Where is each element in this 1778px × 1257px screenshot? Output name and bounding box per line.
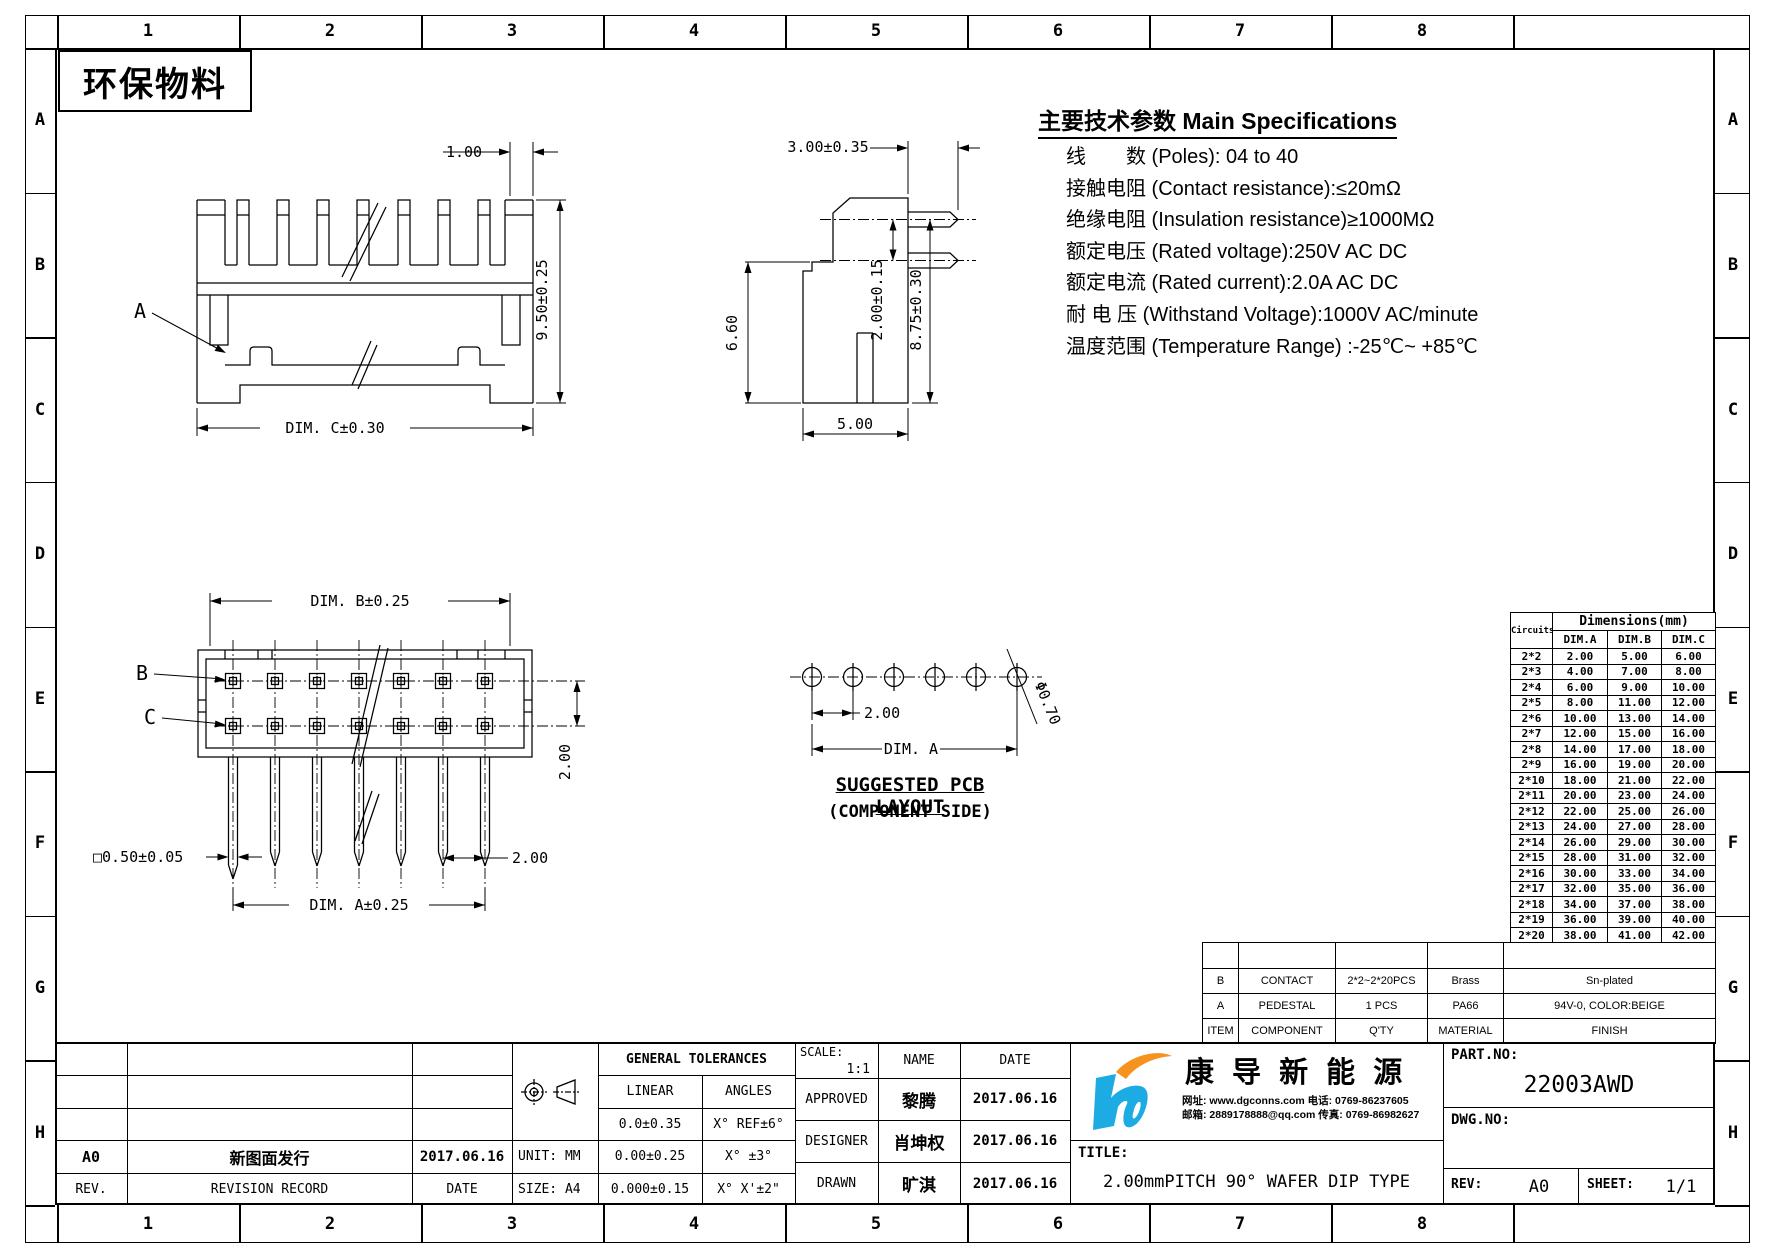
dim-row-value: 42.00 <box>1662 928 1716 944</box>
parts-cell-qty: 1 PCS <box>1336 994 1428 1019</box>
dim-row-value: 16.00 <box>1553 757 1608 773</box>
zone-tick <box>25 48 55 50</box>
pcb-layout-subtitle: (COMPONENT SIDE) <box>800 802 1020 822</box>
dim-table-row: 2*610.0013.0014.00 <box>1511 711 1716 727</box>
part-no-value: 22003AWD <box>1443 1066 1715 1104</box>
signer-name: 旷淇 <box>878 1162 960 1205</box>
rev-label: REV: <box>1451 1177 1482 1192</box>
dim-table-col-b: DIM.B <box>1608 631 1662 649</box>
dim-table-col-a: DIM.A <box>1553 631 1608 649</box>
side-view-drawing: 3.00±0.35 6.60 5.00 2.00±0.15 8.75±0.30 <box>630 110 980 460</box>
parts-cell-item: A <box>1203 994 1239 1019</box>
dim-table-row: 2*1528.0031.0032.00 <box>1511 850 1716 866</box>
dim-row-circuits: 2*17 <box>1511 881 1553 897</box>
zone-column-label: 4 <box>603 1207 785 1241</box>
dim-row-value: 27.00 <box>1608 819 1662 835</box>
zone-tick <box>1149 1205 1151 1243</box>
dim-row-value: 2.00 <box>1553 649 1608 665</box>
spec-line: 温度范围 (Temperature Range) :-25℃~ +85℃ <box>1066 330 1626 362</box>
zone-column-label: 6 <box>967 1207 1149 1241</box>
zone-tick <box>25 916 55 918</box>
dim-row-value: 36.00 <box>1553 912 1608 928</box>
zone-row-label: G <box>26 916 54 1061</box>
parts-cell-material: PA66 <box>1428 994 1504 1019</box>
dim-row-value: 25.00 <box>1608 804 1662 820</box>
zone-tick <box>239 15 241 48</box>
zone-column-label: 1 <box>57 1207 239 1241</box>
zone-column-label: 3 <box>421 16 603 46</box>
zone-tick <box>1715 916 1750 918</box>
logo-swoosh <box>1116 1053 1172 1079</box>
tolerances-linear-header: LINEAR <box>598 1075 702 1108</box>
dim-row-value: 4.00 <box>1553 664 1608 680</box>
tolerance-linear-value: 0.0±0.35 <box>598 1108 702 1140</box>
dim-row-value: 5.00 <box>1608 649 1662 665</box>
zone-column-label: 8 <box>1331 16 1513 46</box>
dim-row-circuits: 2*13 <box>1511 819 1553 835</box>
front-label-a: A <box>134 299 146 323</box>
dim-row-value: 28.00 <box>1553 850 1608 866</box>
zone-tick <box>603 15 605 48</box>
sheet-label: SHEET: <box>1587 1177 1634 1192</box>
front-view-outline <box>197 200 533 403</box>
zone-tick <box>1715 1060 1750 1062</box>
sheet-value: 1/1 <box>1648 1168 1714 1205</box>
dim-row-value: 40.00 <box>1662 912 1716 928</box>
dim-table-row: 2*1834.0037.0038.00 <box>1511 897 1716 913</box>
dim-row-value: 30.00 <box>1553 866 1608 882</box>
dim-table-group-header: Dimensions(mm) <box>1553 613 1716 631</box>
dim-row-circuits: 2*9 <box>1511 757 1553 773</box>
front-dim-tooth: 1.00 <box>446 143 482 161</box>
parts-cell-qty: 2*2~2*20PCS <box>1336 969 1428 994</box>
dim-table-row: 2*1222.0025.0026.00 <box>1511 804 1716 820</box>
side-pin-centerlines <box>820 220 976 261</box>
dim-row-value: 28.00 <box>1662 819 1716 835</box>
spec-line: 线 数 (Poles): 04 to 40 <box>1066 140 1626 172</box>
side-dim-top: 3.00±0.35 <box>787 138 868 156</box>
signer-role: DESIGNER <box>795 1120 878 1162</box>
zone-tick <box>1513 1205 1515 1243</box>
parts-cell-material: Brass <box>1428 969 1504 994</box>
dim-table-row: 2*712.0015.0016.00 <box>1511 726 1716 742</box>
zone-row-label: H <box>1717 1060 1749 1205</box>
top-label-b: B <box>136 661 148 685</box>
dim-row-value: 6.00 <box>1553 680 1608 696</box>
dim-row-value: 34.00 <box>1553 897 1608 913</box>
zone-tick <box>57 1205 59 1243</box>
dim-row-value: 18.00 <box>1662 742 1716 758</box>
dim-row-value: 31.00 <box>1608 850 1662 866</box>
tolerance-linear-value: 0.00±0.25 <box>598 1140 702 1173</box>
side-dim-pin-height: 8.75±0.30 <box>907 269 925 350</box>
zone-tick <box>1715 771 1750 773</box>
front-view-dimensions <box>152 142 566 436</box>
dim-row-value: 14.00 <box>1553 742 1608 758</box>
zone-row-label: A <box>1717 48 1749 193</box>
dim-row-circuits: 2*19 <box>1511 912 1553 928</box>
zone-tick <box>1715 1205 1750 1207</box>
zone-column-label: 7 <box>1149 16 1331 46</box>
dim-row-value: 10.00 <box>1553 711 1608 727</box>
dim-table-row: 2*1630.0033.0034.00 <box>1511 866 1716 882</box>
dim-row-value: 34.00 <box>1662 866 1716 882</box>
spec-line: 耐 电 压 (Withstand Voltage):1000V AC/minut… <box>1066 298 1626 330</box>
dim-row-value: 11.00 <box>1608 695 1662 711</box>
zone-column-label: 5 <box>785 16 967 46</box>
dim-row-value: 29.00 <box>1608 835 1662 851</box>
size-label: SIZE: A4 <box>518 1173 598 1205</box>
pcb-dim-pitch: 2.00 <box>864 704 900 722</box>
front-dim-width: DIM. C±0.30 <box>285 419 384 437</box>
dim-row-circuits: 2*15 <box>1511 850 1553 866</box>
top-dim-pitch: 2.00 <box>512 849 548 867</box>
top-dim-span: DIM. A±0.25 <box>309 896 408 914</box>
dim-row-value: 24.00 <box>1553 819 1608 835</box>
parts-list-table: BCONTACT2*2~2*20PCSBrassSn-platedAPEDEST… <box>1202 942 1716 1044</box>
dim-table-row: 2*1426.0029.0030.00 <box>1511 835 1716 851</box>
zone-tick <box>967 1205 969 1243</box>
parts-cell-finish: 94V-0, COLOR:BEIGE <box>1504 994 1716 1019</box>
dim-table-row: 2*814.0017.0018.00 <box>1511 742 1716 758</box>
tolerance-angles-value: X° REF±6° <box>702 1108 795 1140</box>
dim-row-value: 17.00 <box>1608 742 1662 758</box>
dim-table-row: 2*1732.0035.0036.00 <box>1511 881 1716 897</box>
parts-cell-item: B <box>1203 969 1239 994</box>
dim-row-circuits: 2*6 <box>1511 711 1553 727</box>
top-view-drawing: DIM. B±0.25 B C 2.00 □0.50±0.05 2.00 DIM… <box>80 580 600 925</box>
revision-rev-label: REV. <box>55 1173 127 1205</box>
zone-column-label: 8 <box>1331 1207 1513 1241</box>
zone-row-label: D <box>1717 482 1749 627</box>
parts-table-row: APEDESTAL1 PCSPA6694V-0, COLOR:BEIGE <box>1203 994 1716 1019</box>
dim-table-row: 2*1018.0021.0022.00 <box>1511 773 1716 789</box>
top-dim-width: DIM. B±0.25 <box>310 592 409 610</box>
dim-row-value: 15.00 <box>1608 726 1662 742</box>
dim-row-value: 12.00 <box>1553 726 1608 742</box>
third-angle-projection-icon <box>519 1074 591 1110</box>
parts-table-row: BCONTACT2*2~2*20PCSBrassSn-plated <box>1203 969 1716 994</box>
dim-row-value: 16.00 <box>1662 726 1716 742</box>
zone-column-label: 5 <box>785 1207 967 1241</box>
dim-row-circuits: 2*2 <box>1511 649 1553 665</box>
pcb-dim-span: DIM. A <box>884 740 938 758</box>
dim-row-circuits: 2*10 <box>1511 773 1553 789</box>
dim-table-row: 2*1324.0027.0028.00 <box>1511 819 1716 835</box>
zone-column-label: 2 <box>239 16 421 46</box>
dim-row-value: 21.00 <box>1608 773 1662 789</box>
zone-tick <box>1331 1205 1333 1243</box>
revision-record-value: 新图面发行 <box>127 1140 412 1173</box>
signer-date: 2017.06.16 <box>960 1120 1070 1162</box>
dim-row-value: 10.00 <box>1662 680 1716 696</box>
dim-table-row: 2*46.009.0010.00 <box>1511 680 1716 696</box>
dim-row-value: 8.00 <box>1553 695 1608 711</box>
spec-line: 额定电压 (Rated voltage):250V AC DC <box>1066 235 1626 267</box>
dim-row-value: 36.00 <box>1662 881 1716 897</box>
revision-record-label: REVISION RECORD <box>127 1173 412 1205</box>
zone-tick <box>25 627 55 629</box>
parts-cell-material: MATERIAL <box>1428 1019 1504 1044</box>
zone-tick <box>603 1205 605 1243</box>
zone-row-label: F <box>1717 771 1749 916</box>
eco-material-box: 环保物料 <box>58 50 252 112</box>
dim-row-value: 32.00 <box>1662 850 1716 866</box>
zone-row-label: E <box>1717 627 1749 772</box>
scale-value: 1:1 <box>847 1062 870 1077</box>
zone-column-label: 4 <box>603 16 785 46</box>
dim-row-circuits: 2*16 <box>1511 866 1553 882</box>
signer-date: 2017.06.16 <box>960 1162 1070 1205</box>
title-label: TITLE: <box>1078 1145 1129 1161</box>
zone-tick <box>239 1205 241 1243</box>
dim-row-value: 9.00 <box>1608 680 1662 696</box>
zone-row-label: B <box>1717 193 1749 338</box>
dim-row-value: 22.00 <box>1662 773 1716 789</box>
zone-tick <box>967 15 969 48</box>
zone-row-label: G <box>1717 916 1749 1061</box>
side-dim-front-height: 6.60 <box>723 315 741 351</box>
front-dim-height: 9.50±0.25 <box>533 259 551 340</box>
parts-cell-component: COMPONENT <box>1239 1019 1336 1044</box>
dim-table-row: 2*2038.0041.0042.00 <box>1511 928 1716 944</box>
drawing-title: 2.00mmPITCH 90° WAFER DIP TYPE <box>1070 1162 1443 1202</box>
unit-label: UNIT: MM <box>518 1140 598 1173</box>
zone-tick <box>25 771 55 773</box>
revision-date-label: DATE <box>412 1173 512 1205</box>
dim-row-value: 39.00 <box>1608 912 1662 928</box>
dim-row-circuits: 2*11 <box>1511 788 1553 804</box>
zone-row-label: A <box>26 48 54 193</box>
break-lines <box>342 203 386 389</box>
dim-table-row: 2*1120.0023.0024.00 <box>1511 788 1716 804</box>
break-lines <box>352 645 388 844</box>
dim-table-row: 2*34.007.008.00 <box>1511 664 1716 680</box>
name-header: NAME <box>878 1043 960 1078</box>
projection-symbol <box>512 1043 598 1140</box>
front-view-drawing: 1.00 A 9.50±0.25 DIM. C±0.30 <box>100 130 580 450</box>
top-label-c: C <box>144 705 156 729</box>
spec-line: 接触电阻 (Contact resistance):≤20mΩ <box>1066 172 1626 204</box>
dim-table-col-c: DIM.C <box>1662 631 1716 649</box>
dim-row-value: 32.00 <box>1553 881 1608 897</box>
dim-row-value: 6.00 <box>1662 649 1716 665</box>
tolerance-linear-value: 0.000±0.15 <box>598 1173 702 1205</box>
zone-tick <box>1715 193 1750 195</box>
zone-row-label: C <box>1717 337 1749 482</box>
parts-cell-component: PEDESTAL <box>1239 994 1336 1019</box>
dim-row-circuits: 2*3 <box>1511 664 1553 680</box>
tolerance-angles-value: X° ±3° <box>702 1140 795 1173</box>
spec-line: 额定电流 (Rated current):2.0A AC DC <box>1066 266 1626 298</box>
dim-row-value: 23.00 <box>1608 788 1662 804</box>
scale-cell: SCALE: 1:1 <box>795 1043 878 1078</box>
dim-row-circuits: 2*20 <box>1511 928 1553 944</box>
dim-row-circuits: 2*18 <box>1511 897 1553 913</box>
dim-table-row: 2*1936.0039.0040.00 <box>1511 912 1716 928</box>
dim-table-row: 2*22.005.006.00 <box>1511 649 1716 665</box>
zone-column-label: 1 <box>57 16 239 46</box>
parts-table-row: ITEMCOMPONENTQ'TYMATERIALFINISH <box>1203 1019 1716 1044</box>
signer-name: 黎腾 <box>878 1078 960 1120</box>
dim-row-circuits: 2*12 <box>1511 804 1553 820</box>
dim-row-value: 12.00 <box>1662 695 1716 711</box>
company-name: 康 导 新 能 源 <box>1185 1050 1443 1090</box>
parts-cell-qty: Q'TY <box>1336 1019 1428 1044</box>
dim-row-value: 8.00 <box>1662 664 1716 680</box>
parts-cell-finish: FINISH <box>1504 1019 1716 1044</box>
zone-tick <box>1715 337 1750 339</box>
side-dim-bottom: 5.00 <box>837 415 873 433</box>
parts-empty-row <box>1203 943 1716 969</box>
zone-tick <box>25 337 55 339</box>
zone-tick <box>421 15 423 48</box>
dim-table-circuits-header: Circuits <box>1511 613 1553 649</box>
dim-row-value: 38.00 <box>1553 928 1608 944</box>
zone-tick <box>57 15 59 48</box>
contact-line-1: 网址: www.dgconns.com 电话: 0769-86237605 <box>1182 1094 1444 1108</box>
revision-date-value: 2017.06.16 <box>412 1140 512 1173</box>
zone-column-label: 7 <box>1149 1207 1331 1241</box>
dim-row-value: 24.00 <box>1662 788 1716 804</box>
dim-row-value: 38.00 <box>1662 897 1716 913</box>
signer-role: APPROVED <box>795 1078 878 1120</box>
signer-role: DRAWN <box>795 1162 878 1205</box>
dim-row-value: 33.00 <box>1608 866 1662 882</box>
spec-line: 绝缘电阻 (Insulation resistance)≥1000MΩ <box>1066 203 1626 235</box>
signer-date: 2017.06.16 <box>960 1078 1070 1120</box>
side-dim-pin-spacing: 2.00±0.15 <box>868 259 886 340</box>
specs-title: 主要技术参数 Main Specifications <box>1038 102 1397 139</box>
dim-row-value: 22.00 <box>1553 804 1608 820</box>
dim-row-value: 37.00 <box>1608 897 1662 913</box>
top-dim-row-pitch: 2.00 <box>556 744 574 780</box>
revision-rev-value: A0 <box>55 1140 127 1173</box>
dim-row-value: 20.00 <box>1662 757 1716 773</box>
dim-row-circuits: 2*7 <box>1511 726 1553 742</box>
tolerance-angles-value: X° X'±2" <box>702 1173 795 1205</box>
dim-row-value: 26.00 <box>1662 804 1716 820</box>
zone-tick <box>25 482 55 484</box>
parts-cell-component: CONTACT <box>1239 969 1336 994</box>
dim-row-value: 20.00 <box>1553 788 1608 804</box>
dim-table-row: 2*58.0011.0012.00 <box>1511 695 1716 711</box>
dim-row-value: 18.00 <box>1553 773 1608 789</box>
zone-tick <box>25 193 55 195</box>
tolerances-title: GENERAL TOLERANCES <box>598 1043 795 1075</box>
dimensions-table: Circuits Dimensions(mm) DIM.A DIM.B DIM.… <box>1510 612 1716 944</box>
dim-row-value: 7.00 <box>1608 664 1662 680</box>
company-contact: 网址: www.dgconns.com 电话: 0769-86237605 邮箱… <box>1182 1094 1444 1122</box>
parts-cell-item: ITEM <box>1203 1019 1239 1044</box>
scale-label: SCALE: <box>800 1045 843 1059</box>
part-no-label: PART.NO: <box>1451 1047 1518 1063</box>
date-header: DATE <box>960 1043 1070 1078</box>
parts-cell-finish: Sn-plated <box>1504 969 1716 994</box>
drawing-sheet: 环保物料 主要技术参数 Main Specifications 线 数 (Pol… <box>0 0 1778 1257</box>
zone-row-label: B <box>26 193 54 338</box>
specs-list: 线 数 (Poles): 04 to 40接触电阻 (Contact resis… <box>1066 140 1626 361</box>
zone-tick <box>421 1205 423 1243</box>
zone-tick <box>785 1205 787 1243</box>
dwg-no-label: DWG.NO: <box>1451 1112 1510 1128</box>
zone-tick <box>1715 48 1750 50</box>
signer-name: 肖坤权 <box>878 1120 960 1162</box>
dim-table-row: 2*916.0019.0020.00 <box>1511 757 1716 773</box>
tolerances-angles-header: ANGLES <box>702 1075 795 1108</box>
contact-line-2: 邮箱: 2889178888@qq.com 传真: 0769-86982627 <box>1182 1108 1444 1122</box>
dim-row-value: 30.00 <box>1662 835 1716 851</box>
dim-row-value: 13.00 <box>1608 711 1662 727</box>
dim-row-value: 19.00 <box>1608 757 1662 773</box>
zone-row-label: D <box>26 482 54 627</box>
zone-tick <box>1715 627 1750 629</box>
dim-row-circuits: 2*4 <box>1511 680 1553 696</box>
zone-tick <box>1715 482 1750 484</box>
top-dim-pin-square: □0.50±0.05 <box>93 848 183 866</box>
top-view-outline <box>198 645 532 844</box>
zone-column-label: 3 <box>421 1207 603 1241</box>
dim-row-value: 26.00 <box>1553 835 1608 851</box>
dim-row-circuits: 2*5 <box>1511 695 1553 711</box>
zone-column-label: 6 <box>967 16 1149 46</box>
zone-row-label: F <box>26 771 54 916</box>
side-view-dimensions <box>745 141 981 441</box>
zone-tick <box>25 1205 55 1207</box>
logo-monogram <box>1093 1074 1148 1130</box>
dim-row-value: 41.00 <box>1608 928 1662 944</box>
zone-row-label: C <box>26 337 54 482</box>
zone-tick <box>1513 15 1515 48</box>
zone-tick <box>1149 15 1151 48</box>
zone-row-label: E <box>26 627 54 772</box>
zone-row-label: H <box>26 1060 54 1205</box>
zone-column-label: 2 <box>239 1207 421 1241</box>
dim-row-value: 35.00 <box>1608 881 1662 897</box>
rev-value: A0 <box>1500 1168 1578 1205</box>
dim-row-circuits: 2*8 <box>1511 742 1553 758</box>
company-logo <box>1082 1048 1176 1134</box>
dim-row-circuits: 2*14 <box>1511 835 1553 851</box>
zone-tick <box>25 1060 55 1062</box>
zone-tick <box>1331 15 1333 48</box>
dim-row-value: 14.00 <box>1662 711 1716 727</box>
zone-tick <box>785 15 787 48</box>
